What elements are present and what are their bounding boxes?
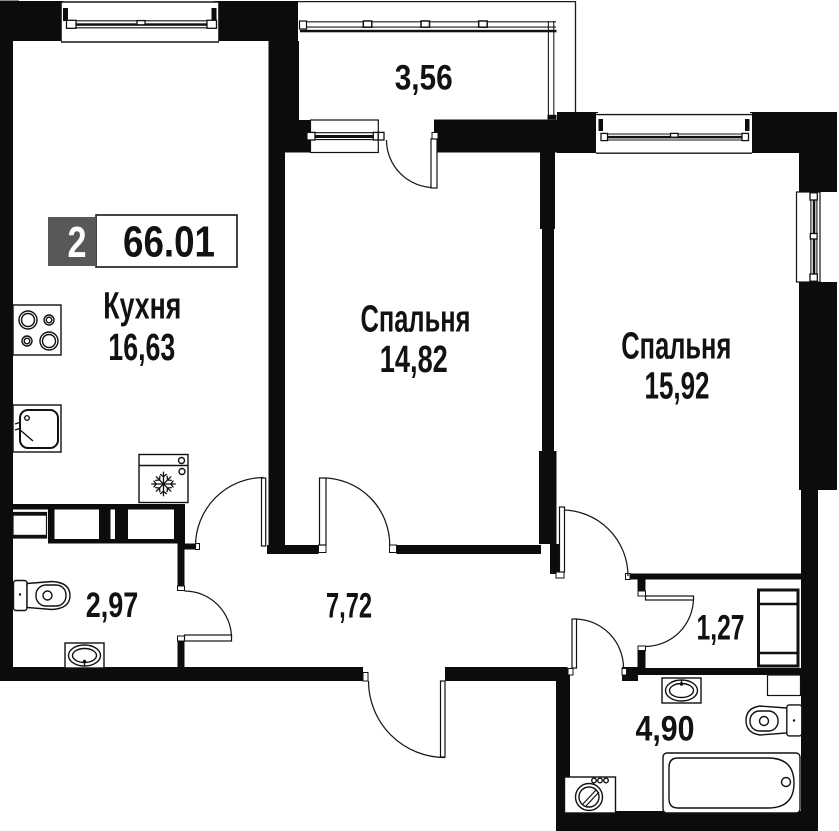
svg-text:2,97: 2,97 [86,585,139,625]
svg-text:3,56: 3,56 [395,57,453,97]
svg-text:4,90: 4,90 [636,708,695,748]
svg-text:16,63: 16,63 [108,327,175,369]
svg-text:Спальня: Спальня [621,326,731,368]
svg-text:Спальня: Спальня [361,299,471,341]
svg-text:2: 2 [68,218,87,267]
svg-text:7,72: 7,72 [326,585,372,625]
svg-text:14,82: 14,82 [380,339,448,381]
svg-text:1,27: 1,27 [697,608,745,648]
svg-text:66.01: 66.01 [123,218,215,267]
svg-text:Кухня: Кухня [103,285,181,327]
svg-text:15,92: 15,92 [645,365,710,407]
